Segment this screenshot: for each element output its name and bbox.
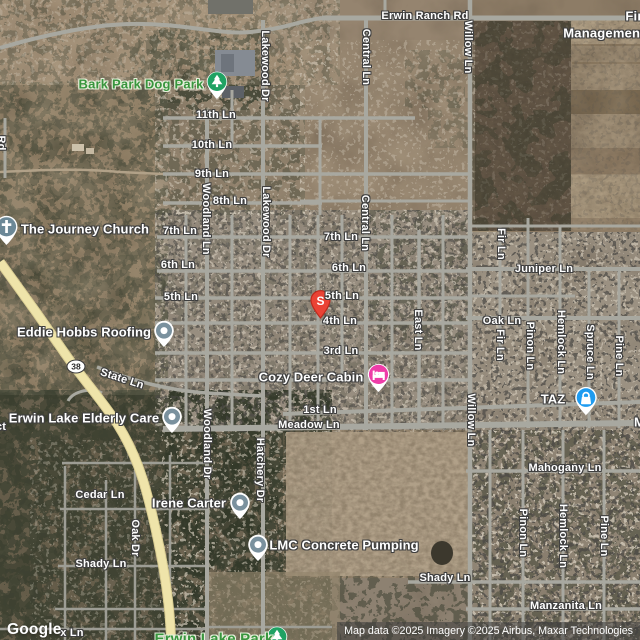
svg-text:38: 38 [71, 362, 81, 372]
svg-text:S: S [316, 294, 324, 308]
